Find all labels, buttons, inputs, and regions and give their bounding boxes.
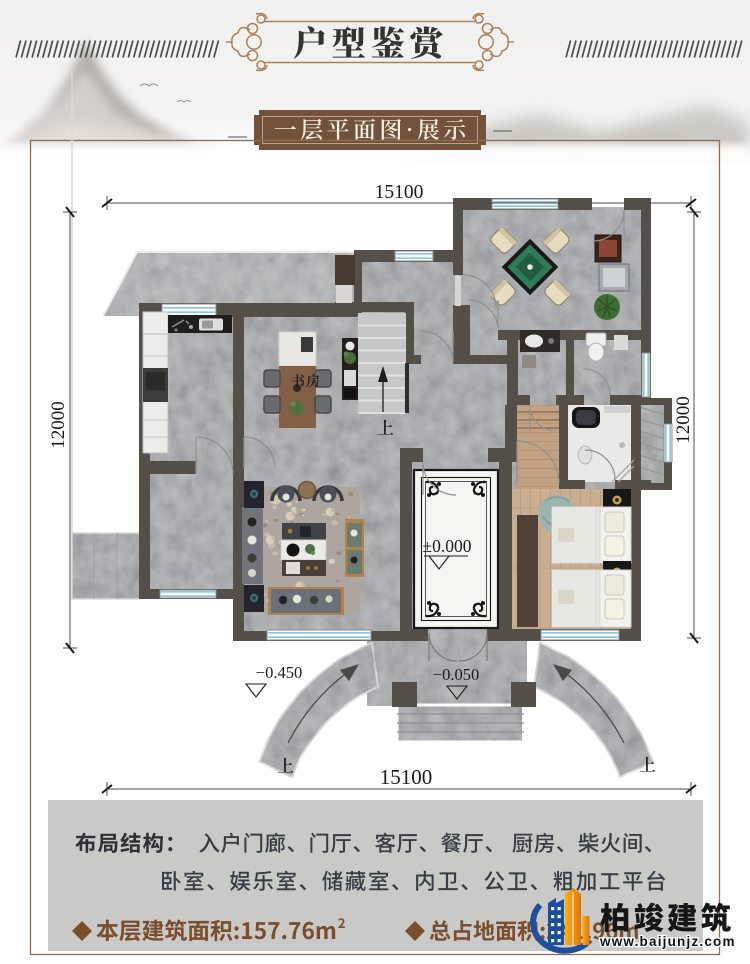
- svg-text:www.baijunjz.com: www.baijunjz.com: [599, 934, 736, 949]
- svg-text:±0.000: ±0.000: [423, 536, 472, 556]
- svg-text:−0.050: −0.050: [433, 665, 479, 684]
- svg-text:15100: 15100: [375, 182, 424, 203]
- svg-text:12000: 12000: [673, 396, 694, 444]
- svg-text:15100: 15100: [380, 765, 433, 789]
- svg-text:12000: 12000: [48, 401, 69, 449]
- svg-text:−0.450: −0.450: [256, 663, 302, 682]
